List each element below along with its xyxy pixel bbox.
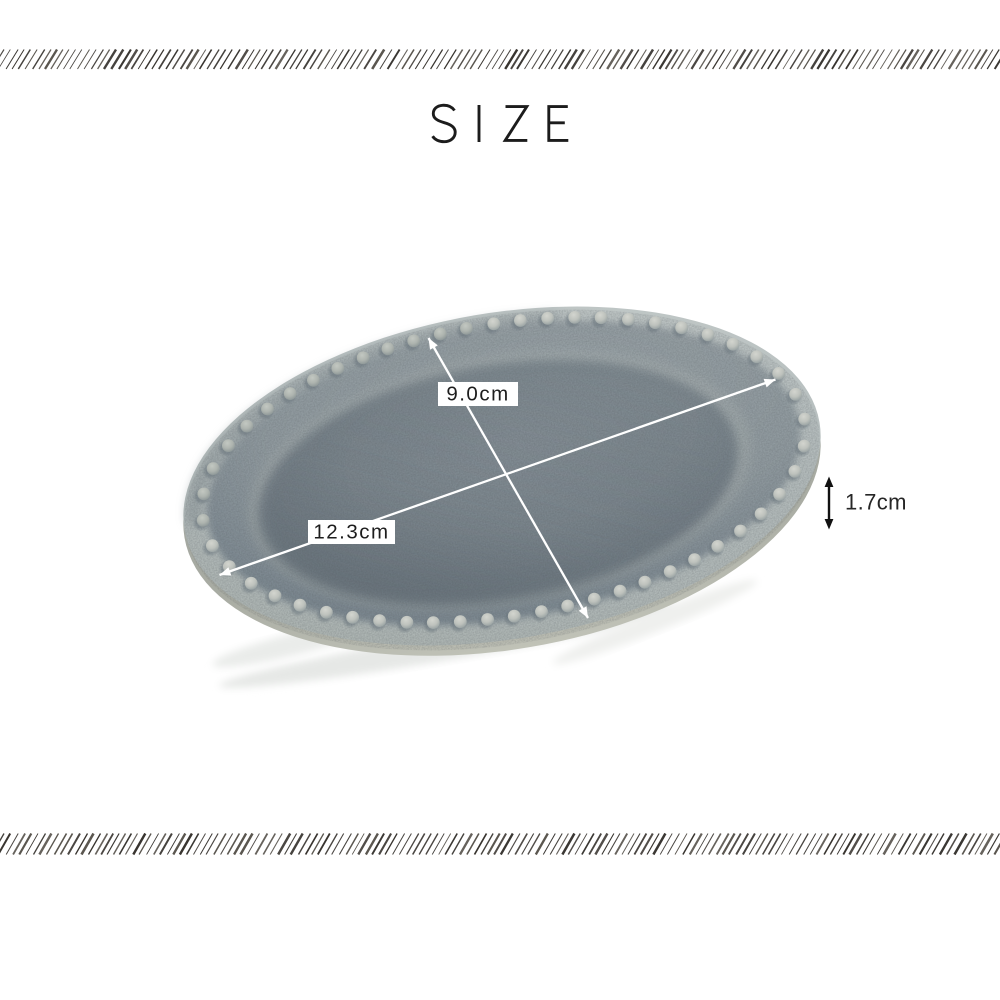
svg-text:9.0cm: 9.0cm — [446, 383, 509, 406]
svg-text:1.7cm: 1.7cm — [845, 490, 907, 515]
svg-text:12.3cm: 12.3cm — [313, 521, 389, 544]
